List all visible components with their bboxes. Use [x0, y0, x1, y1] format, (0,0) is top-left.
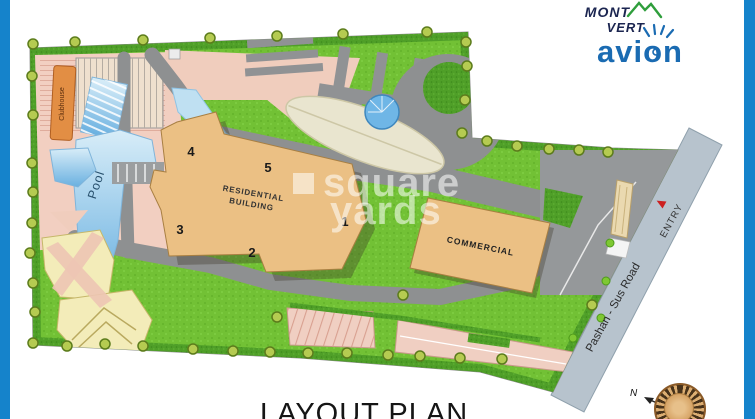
left-accent-bar [0, 0, 10, 419]
right-accent-bar [744, 0, 755, 419]
logo-vert: VERT [607, 20, 645, 35]
logo-brand: avion [597, 34, 683, 69]
plan-title: LAYOUT PLAN [260, 398, 468, 419]
mountain-icon [628, 3, 661, 17]
utility-structure [169, 49, 180, 59]
building-number-3: 3 [176, 222, 183, 237]
clubhouse-label: Clubhouse [59, 87, 66, 121]
building-number-1: 1 [341, 214, 348, 229]
compass-center [664, 393, 694, 419]
clubhouse: Clubhouse [50, 65, 76, 140]
building-number-4: 4 [187, 144, 195, 159]
building-number-2: 2 [248, 245, 255, 260]
brand-logo: MONT VERT avion [583, 0, 723, 72]
compass-north-label: N [630, 388, 637, 399]
layout-plan-canvas: 4 5 3 2 1 RESIDENTIAL BUILDING COMMERCIA… [0, 0, 755, 419]
logo-mont: MONT [585, 4, 631, 20]
building-number-5: 5 [264, 160, 271, 175]
